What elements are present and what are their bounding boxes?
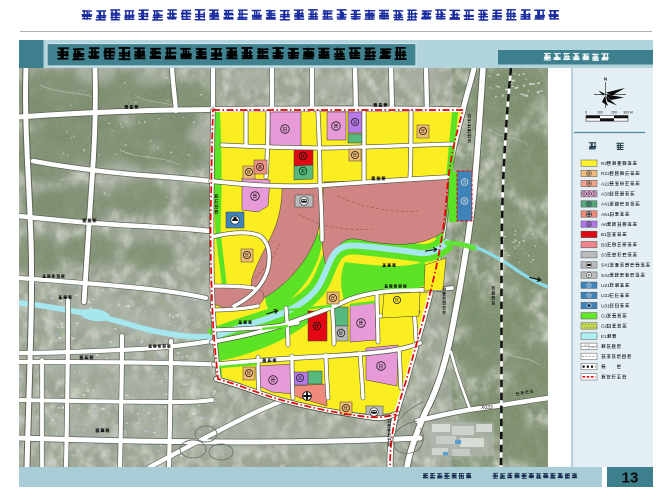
svg-text:S42: S42 (601, 273, 610, 279)
svg-text:G1: G1 (601, 314, 608, 320)
svg-text:X033: X033 (481, 405, 493, 411)
svg-text:A41: A41 (601, 202, 610, 208)
svg-text:R22: R22 (601, 171, 610, 177)
svg-text:A6: A6 (601, 222, 607, 228)
svg-text:B3: B3 (601, 242, 607, 248)
svg-text:A51: A51 (601, 212, 610, 218)
svg-text:A22: A22 (601, 181, 610, 187)
svg-text:E1: E1 (601, 334, 607, 340)
svg-text:U31: U31 (601, 303, 610, 309)
svg-text:P: P (587, 273, 590, 278)
svg-text:G2: G2 (601, 324, 608, 330)
svg-text:200: 200 (611, 111, 617, 115)
svg-text:U22: U22 (601, 293, 610, 299)
svg-text:A33: A33 (601, 192, 610, 198)
svg-text:S3: S3 (601, 253, 607, 259)
svg-text:R2: R2 (601, 161, 608, 167)
svg-text:N: N (604, 77, 607, 82)
svg-text:0: 0 (585, 111, 587, 115)
svg-text:B1: B1 (601, 232, 607, 238)
svg-text:100: 100 (597, 111, 603, 115)
svg-text:U21: U21 (601, 283, 610, 289)
svg-text:S41: S41 (601, 263, 610, 269)
svg-text:13: 13 (622, 470, 639, 487)
svg-text:300 M: 300 M (623, 111, 633, 115)
